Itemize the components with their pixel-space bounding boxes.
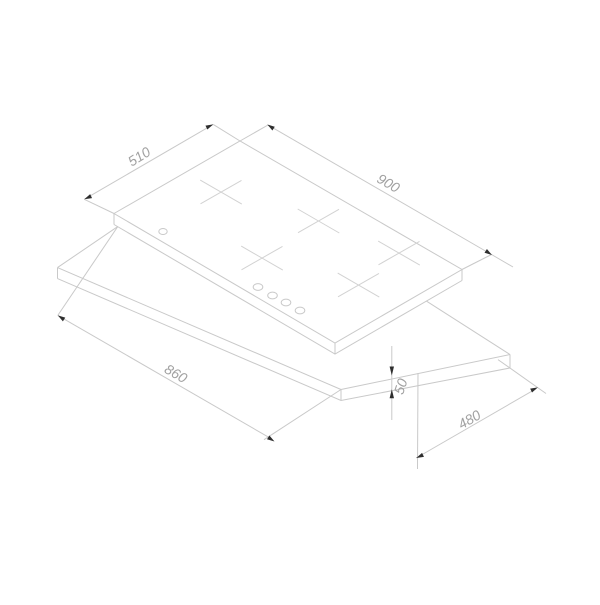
svg-text:860: 860 <box>162 361 190 387</box>
svg-text:900: 900 <box>374 170 402 196</box>
svg-text:510: 510 <box>125 143 153 169</box>
svg-text:50: 50 <box>391 376 411 396</box>
svg-text:480: 480 <box>455 406 483 432</box>
